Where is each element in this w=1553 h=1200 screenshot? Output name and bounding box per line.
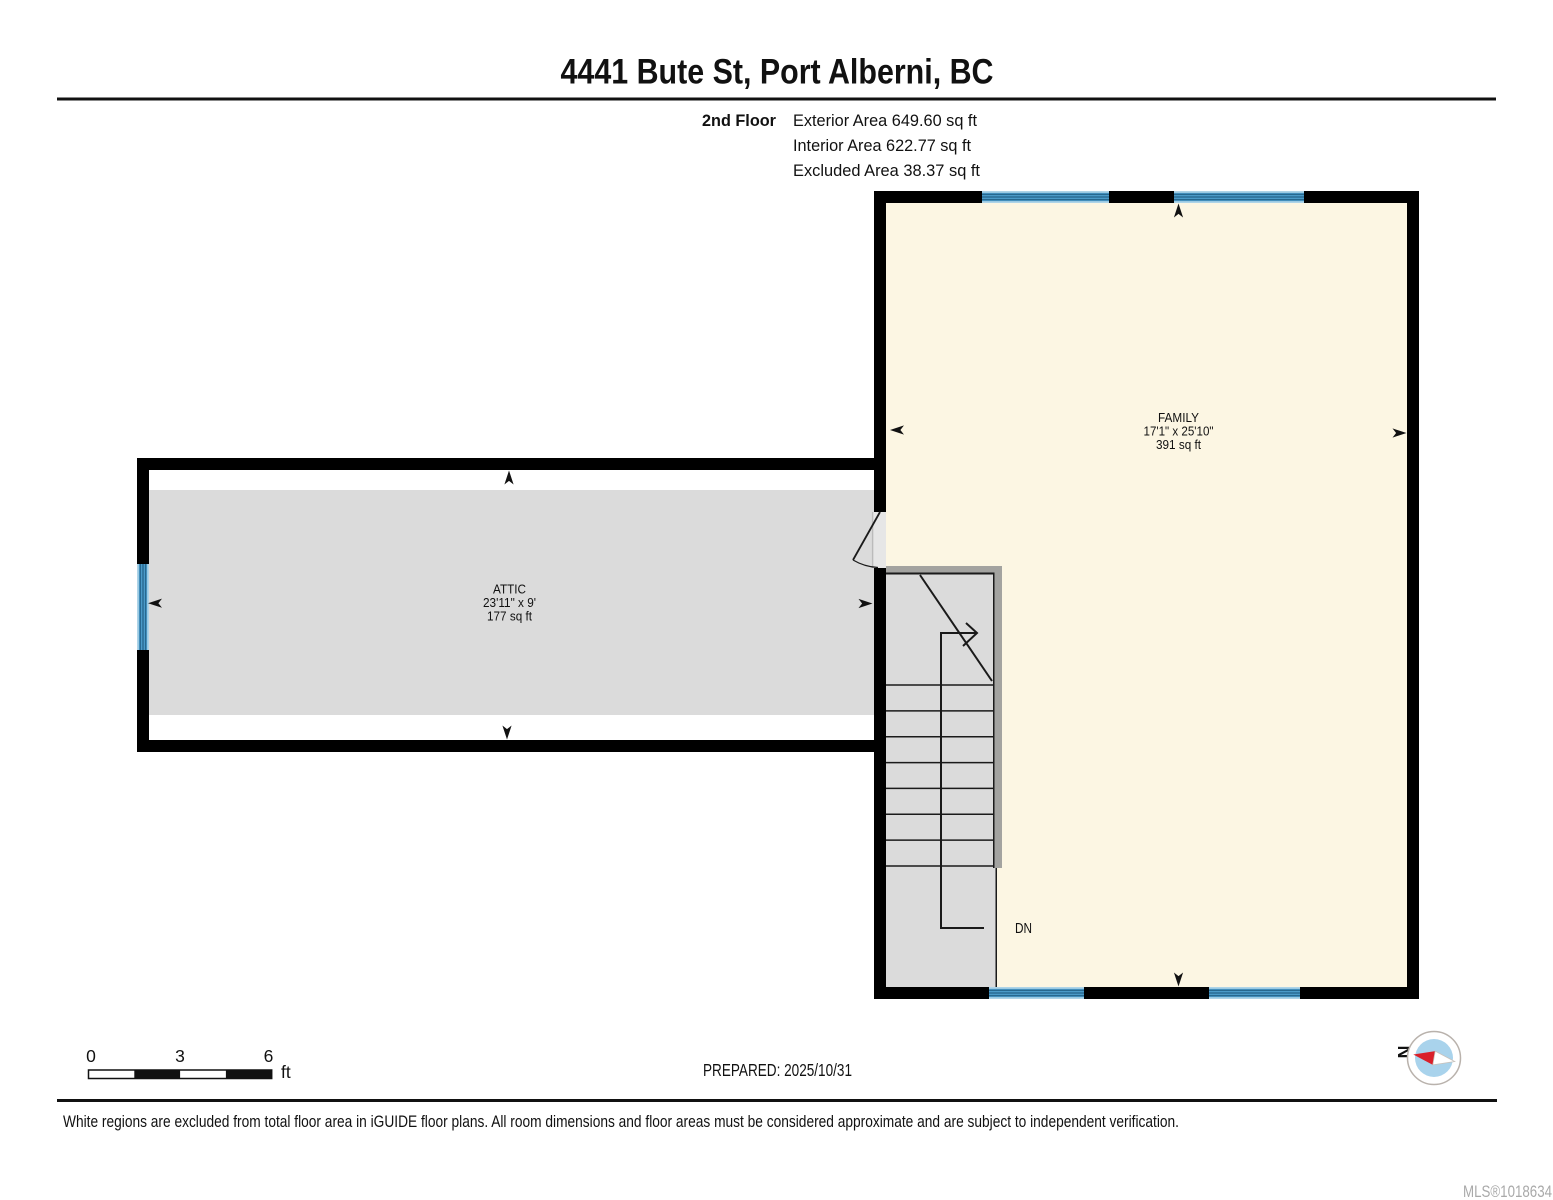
svg-text:DN: DN — [1015, 920, 1032, 937]
svg-text:4441 Bute St, Port Alberni, BC: 4441 Bute St, Port Alberni, BC — [561, 53, 994, 92]
svg-text:White regions are excluded fro: White regions are excluded from total fl… — [63, 1112, 1179, 1131]
svg-text:3: 3 — [175, 1046, 185, 1066]
svg-text:Excluded Area 38.37 sq ft: Excluded Area 38.37 sq ft — [793, 161, 980, 180]
svg-text:ft: ft — [281, 1062, 291, 1082]
svg-text:Exterior Area 649.60 sq ft: Exterior Area 649.60 sq ft — [793, 111, 977, 130]
svg-text:PREPARED: 2025/10/31: PREPARED: 2025/10/31 — [703, 1060, 852, 1080]
svg-text:0: 0 — [86, 1046, 96, 1066]
svg-text:177 sq ft: 177 sq ft — [487, 609, 532, 624]
svg-text:MLS®1018634: MLS®1018634 — [1463, 1182, 1552, 1200]
svg-text:Interior Area 622.77 sq ft: Interior Area 622.77 sq ft — [793, 136, 971, 155]
svg-text:2nd Floor: 2nd Floor — [702, 111, 776, 130]
svg-text:391 sq ft: 391 sq ft — [1156, 437, 1201, 452]
svg-text:6: 6 — [264, 1046, 274, 1066]
